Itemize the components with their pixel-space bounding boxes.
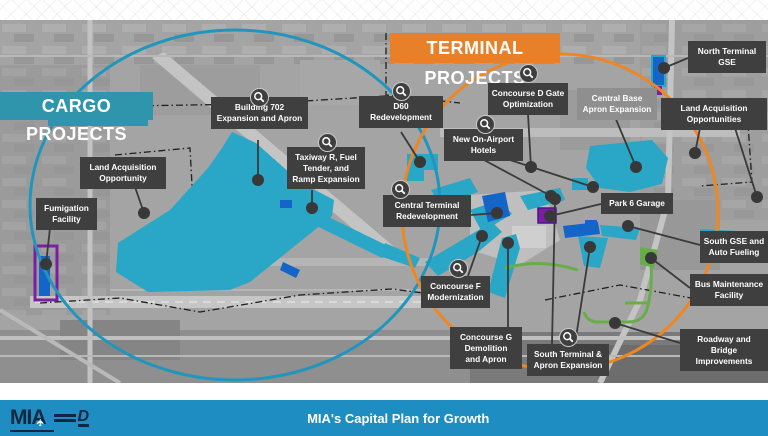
miami-dade-logo: D xyxy=(54,410,90,427)
map-dot-d60-redevelopment xyxy=(414,156,426,168)
map-dot-south-gse-auto-fueling xyxy=(622,220,634,232)
magnifier-icon-concourse-f xyxy=(449,259,468,278)
mia-logo-underbar xyxy=(10,430,54,432)
magnifier-icon-south-terminal-apron xyxy=(559,328,578,347)
magnifier-icon-central-terminal xyxy=(391,180,410,199)
label-central-terminal: Central Terminal Redevelopment xyxy=(383,195,471,227)
label-south-gse-auto-fueling: South GSE and Auto Fueling xyxy=(700,231,768,263)
magnifier-icon-new-on-airport-hotels xyxy=(476,115,495,134)
label-taxiway-r: Taxiway R, Fuel Tender, and Ramp Expansi… xyxy=(287,147,365,189)
map-dot-south-terminal-apron xyxy=(549,193,561,205)
label-concourse-g: Concourse G Demolition and Apron xyxy=(450,327,522,369)
magnifier-icon-d60-redevelopment xyxy=(392,82,411,101)
airplane-icon: ✈ xyxy=(29,420,51,427)
map-dot-north-terminal-gse xyxy=(658,62,670,74)
cargo-banner-tab xyxy=(48,120,148,126)
map-dot-land-acquisition-opportunities xyxy=(751,191,763,203)
label-central-base-apron: Central Base Apron Expansion xyxy=(577,88,657,120)
label-bus-maintenance: Bus Maintenance Facility xyxy=(690,274,768,306)
map-dot-roadway-bridge xyxy=(609,317,621,329)
map-dot-concourse-f xyxy=(476,230,488,242)
cargo-projects-banner: CARGO PROJECTS xyxy=(0,92,153,120)
map-dot-land-acquisition-opportunities xyxy=(689,147,701,159)
miami-dade-d-icon: D xyxy=(78,410,90,427)
map-dot-concourse-g xyxy=(502,237,514,249)
label-new-on-airport-hotels: New On-Airport Hotels xyxy=(444,129,523,161)
map-dot-new-on-airport-hotels xyxy=(587,181,599,193)
footer-gap xyxy=(0,383,768,400)
magnifier-icon-building-702 xyxy=(250,88,269,107)
terminal-projects-banner: TERMINAL PROJECTS xyxy=(390,33,560,63)
magnifier-icon-concourse-d-gate xyxy=(519,64,538,83)
label-fumigation-facility: Fumigation Facility xyxy=(36,198,97,230)
label-roadway-bridge: Roadway and Bridge Improvements xyxy=(680,329,768,371)
label-land-acquisition-opportunity: Land Acquisition Opportunity xyxy=(80,157,166,189)
footer-bar: MIA ✈ D MIA's Capital Plan for Growth xyxy=(0,400,768,436)
label-concourse-d-gate: Concourse D Gate Optimization xyxy=(488,83,568,115)
airport-map: Building 702 Expansion and ApronTaxiway … xyxy=(0,0,768,436)
miami-dade-text-bars xyxy=(54,414,76,422)
map-dot-bus-maintenance xyxy=(645,252,657,264)
label-d60-redevelopment: D60 Redevelopment xyxy=(359,96,443,128)
label-north-terminal-gse: North Terminal GSE xyxy=(688,41,766,73)
slide-title: MIA's Capital Plan for Growth xyxy=(307,411,489,426)
mia-logo-text: MIA ✈ xyxy=(10,407,46,429)
label-south-terminal-apron: South Terminal & Apron Expansion xyxy=(527,344,609,376)
map-dot-taxiway-r xyxy=(306,202,318,214)
map-dot-fumigation-facility xyxy=(40,258,52,270)
map-dot-land-acquisition-opportunity xyxy=(138,207,150,219)
mia-logo: MIA ✈ D xyxy=(10,404,89,432)
label-park-6-garage: Park 6 Garage xyxy=(601,193,673,214)
map-dot-south-terminal-apron xyxy=(584,241,596,253)
top-pattern-band xyxy=(0,0,768,20)
magnifier-icon-taxiway-r xyxy=(318,133,337,152)
label-concourse-f: Concourse F Modernization xyxy=(421,276,490,308)
map-dot-central-terminal xyxy=(491,207,503,219)
map-dot-central-base-apron xyxy=(630,161,642,173)
map-dot-building-702 xyxy=(252,174,264,186)
slide: { "banners": { "cargo": {"label": "CARGO… xyxy=(0,0,768,436)
label-land-acquisition-opportunities: Land Acquisition Opportunities xyxy=(661,98,767,130)
